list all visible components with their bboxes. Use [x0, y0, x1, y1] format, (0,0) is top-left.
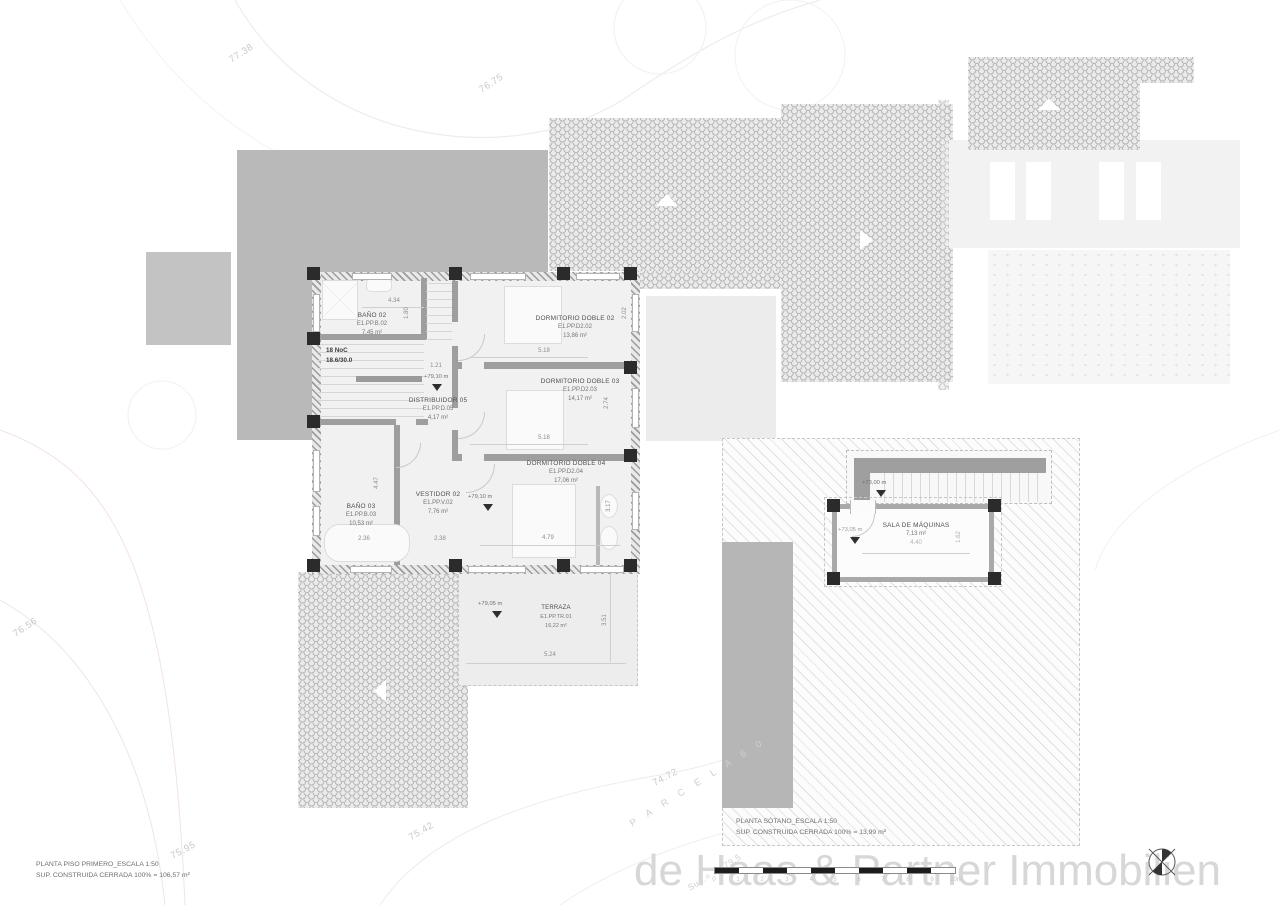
- scale-tick: 6: [850, 877, 868, 883]
- roof-topright-ext: [1140, 57, 1194, 83]
- window: [580, 566, 624, 573]
- first-floor-title-block: PLANTA PISO PRIMERO_ESCALA 1:50 SUP. CON…: [36, 859, 190, 881]
- roof-bottomleft-arrow-icon: [374, 680, 386, 702]
- dim-1-21: 1.21: [422, 363, 450, 369]
- roof-ridge-arrow-up-icon: [656, 194, 678, 206]
- room-code: E1.PP.D2.04: [505, 468, 627, 477]
- column: [624, 559, 637, 572]
- room-name: TERRAZA: [516, 604, 596, 613]
- room-code: E1.PP.D.05: [398, 405, 478, 414]
- level-triangle-icon: [483, 504, 493, 511]
- stair-annotation: 18 NoC 18.6/30.0: [326, 346, 352, 366]
- dim-2-74: 2.74: [604, 392, 610, 414]
- scale-tick: 5: [826, 877, 844, 883]
- basement-title: PLANTA SÓTANO_ESCALA 1:50: [736, 816, 886, 827]
- window: [352, 273, 392, 280]
- level-marker-7300: +73,00 m: [862, 480, 886, 486]
- dim-line: [466, 663, 626, 664]
- dim-line: [470, 357, 588, 358]
- pergola-slat: [1136, 162, 1161, 220]
- room-name: DORMITORIO DOBLE 03: [520, 377, 640, 386]
- room-code: E1.PP.V.02: [398, 499, 478, 508]
- room-label-bano02: BAÑO 02 E1.PP.B.02 7,45 m²: [332, 311, 412, 338]
- dim-5-24: 5.24: [530, 652, 570, 658]
- dim-4-47: 4.47: [374, 472, 380, 494]
- scale-tick: 0: [705, 877, 723, 883]
- stair-handrail: [356, 376, 422, 382]
- dim-4-79: 4.79: [532, 535, 564, 541]
- dim-line: [362, 307, 424, 308]
- column: [449, 559, 462, 572]
- bathtub: [324, 524, 410, 562]
- terraza-label: TERRAZA E1.PP.TR.01 16,22 m²: [516, 604, 596, 631]
- room-label-vestidor: VESTIDOR 02 E1.PP.V.02 7,76 m²: [398, 490, 478, 517]
- column: [307, 415, 320, 428]
- room-area: 7,13 m²: [866, 530, 966, 539]
- roof-topright-arrow-icon: [1038, 98, 1060, 110]
- dim-4-40: 4.40: [866, 539, 966, 548]
- pergola-slat: [1026, 162, 1051, 220]
- basement-area: SUP. CONSTRUIDA CERRADA 100% = 13,99 m²: [736, 827, 886, 838]
- column: [557, 559, 570, 572]
- pergola-slat: [1099, 162, 1124, 220]
- room-code: E1.PP.B.03: [322, 511, 400, 520]
- room-code: E1.PP.B.02: [332, 320, 412, 329]
- column: [307, 332, 320, 345]
- level-marker-7910-b: +79,10 m: [468, 494, 492, 500]
- stair-upper-flight: [426, 282, 452, 340]
- dim-1-80: 1.80: [404, 302, 410, 324]
- window: [576, 273, 620, 280]
- room-name: BAÑO 03: [322, 502, 400, 511]
- window: [313, 450, 320, 492]
- dim-3-51: 3.51: [602, 609, 608, 631]
- room-name: SALA DE MÁQUINAS: [866, 521, 966, 530]
- room-area: 14,17 m²: [520, 395, 640, 404]
- roof-central-mid: [637, 271, 781, 289]
- dim-3-17: 3.17: [606, 495, 612, 517]
- scale-tick: 4: [802, 877, 820, 883]
- column: [307, 267, 320, 280]
- room-code: E1.PP.D2.03: [520, 386, 640, 395]
- room-area: 17,06 m²: [505, 477, 627, 486]
- level-triangle-icon: [432, 384, 442, 391]
- room-label-dorm04: DORMITORIO DOBLE 04 E1.PP.D2.04 17,06 m²: [505, 459, 627, 486]
- column: [624, 361, 637, 374]
- scale-tick: 3: [778, 877, 796, 883]
- room-label-dorm03: DORMITORIO DOBLE 03 E1.PP.D2.03 14,17 m²: [520, 377, 640, 404]
- window: [313, 294, 320, 332]
- dim-line: [610, 570, 611, 662]
- room-code: E1.PP.TR.01: [516, 613, 596, 622]
- site-plan-canvas: +73,00 m SALA DE MÁQUINAS 7,13 m² 4.40 +…: [0, 0, 1280, 905]
- sala-door-opening: [850, 500, 876, 514]
- column: [307, 559, 320, 572]
- window: [313, 506, 320, 536]
- basement-wall-strip: [722, 542, 793, 808]
- east-court: [646, 296, 776, 441]
- room-name: DORMITORIO DOBLE 04: [505, 459, 627, 468]
- bed: [512, 484, 576, 558]
- window: [470, 273, 526, 280]
- tile-ribbon: [938, 100, 949, 390]
- north-compass-icon: [1143, 843, 1181, 881]
- column: [449, 267, 462, 280]
- stone-terrace: [988, 250, 1230, 384]
- room-area: 13,86 m²: [515, 332, 635, 341]
- dim-5-18-b: 5.18: [528, 435, 560, 441]
- window: [632, 492, 639, 530]
- dim-2-02: 2.02: [622, 302, 628, 324]
- level-marker-7905: +79,05 m: [478, 601, 502, 607]
- first-floor-title: PLANTA PISO PRIMERO_ESCALA 1:50: [36, 859, 190, 870]
- dim-5-18-a: 5.18: [528, 348, 560, 354]
- room-name: BAÑO 02: [332, 311, 412, 320]
- dim-2-36: 2.36: [350, 536, 378, 542]
- column: [557, 267, 570, 280]
- door-gap: [462, 454, 484, 461]
- stair-line1: 18 NoC: [326, 346, 352, 356]
- level-triangle-icon: [876, 490, 886, 497]
- washbasin: [366, 278, 392, 292]
- roof-ridge-arrow-right-icon: [860, 230, 873, 250]
- scale-tick: 7: [874, 877, 892, 883]
- neighbor-backdrop: [942, 140, 1240, 248]
- scale-bar: [714, 867, 956, 874]
- pergola-slat: [990, 162, 1015, 220]
- room-area: 16,22 m²: [516, 622, 596, 631]
- room-label-distribuidor: DISTRIBUIDOR 05 E1.PP.D.05 4,17 m²: [398, 396, 478, 423]
- scale-tick: 9: [923, 877, 941, 883]
- toilet: [600, 526, 618, 550]
- level-triangle-icon: [850, 537, 860, 544]
- room-label-dorm02: DORMITORIO DOBLE 02 E1.PP.D2.02 13,86 m²: [515, 314, 635, 341]
- column: [827, 499, 840, 512]
- dim-1-62: 1.62: [956, 526, 962, 548]
- column: [827, 572, 840, 585]
- room-area: 10,53 m²: [322, 520, 400, 529]
- door-gap: [462, 362, 484, 369]
- room-name: DORMITORIO DOBLE 02: [515, 314, 635, 323]
- room-name: DISTRIBUIDOR 05: [398, 396, 478, 405]
- scale-tick: 10m: [947, 877, 965, 883]
- scale-tick: 8: [899, 877, 917, 883]
- room-area: 7,76 m²: [398, 508, 478, 517]
- room-code: E1.PP.D2.02: [515, 323, 635, 332]
- window: [468, 566, 526, 573]
- internal-wall-ensuite: [596, 486, 600, 565]
- dim-line: [470, 444, 588, 445]
- level-marker-7305: +73,05 m: [838, 527, 862, 533]
- column: [624, 267, 637, 280]
- level-triangle-icon: [492, 611, 502, 618]
- room-area: 4,17 m²: [398, 414, 478, 423]
- scale-tick: 2: [753, 877, 771, 883]
- window: [350, 566, 392, 573]
- room-area: 7,45 m²: [332, 329, 412, 338]
- scale-tick: 1: [729, 877, 747, 883]
- column: [988, 572, 1001, 585]
- basement-retaining-wall-h: [854, 458, 1046, 473]
- column: [988, 499, 1001, 512]
- dim-2-38: 2.38: [426, 536, 454, 542]
- basement-title-block: PLANTA SÓTANO_ESCALA 1:50 SUP. CONSTRUID…: [736, 816, 886, 838]
- first-floor-area: SUP. CONSTRUIDA CERRADA 100% = 106,57 m²: [36, 870, 190, 881]
- patio-area-small: [146, 252, 231, 345]
- dim-line: [862, 553, 970, 554]
- level-marker-7910-a: +79,10 m: [424, 374, 448, 380]
- sala-label: SALA DE MÁQUINAS 7,13 m² 4.40: [866, 521, 966, 548]
- room-label-bano03: BAÑO 03 E1.PP.B.03 10,53 m²: [322, 502, 400, 529]
- dim-line: [480, 545, 620, 546]
- room-name: VESTIDOR 02: [398, 490, 478, 499]
- stair-line2: 18.6/30.0: [326, 356, 352, 366]
